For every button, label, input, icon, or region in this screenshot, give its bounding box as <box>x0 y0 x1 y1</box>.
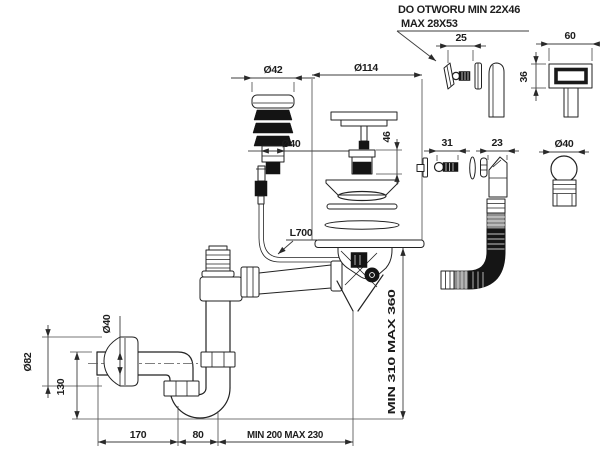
dim-36: 36 <box>518 52 546 101</box>
overflow-washer <box>470 157 476 179</box>
dim-o40-overflow-label: Ø40 <box>555 138 574 150</box>
overflow-rosette-pin <box>417 158 458 177</box>
plug-seal-ring-1 <box>254 110 292 120</box>
control-button <box>549 64 592 117</box>
stopper-plug <box>252 95 294 174</box>
adapter-ribbed <box>206 250 230 272</box>
button-face <box>556 70 586 83</box>
overflow-body <box>551 156 577 206</box>
dim-min200-label: MIN 200 MAX 230 <box>247 429 323 441</box>
dim-46-label: 46 <box>381 131 393 143</box>
strainer-cover <box>331 112 397 120</box>
mounting-screw-head <box>452 72 459 79</box>
cable-clevis <box>351 253 367 268</box>
lever-knob <box>365 268 380 283</box>
dim-60: 60 <box>536 30 600 61</box>
trap-nut-left <box>164 381 199 396</box>
dim-o42: Ø42 <box>231 64 315 92</box>
plug-seal-ring-2 <box>253 123 293 133</box>
strainer-basket-lip <box>349 150 375 157</box>
cable-block <box>255 181 267 196</box>
dim-o82-label: Ø82 <box>22 352 34 371</box>
plug-cap <box>252 95 294 108</box>
dim-25-label: 25 <box>455 32 467 44</box>
upper-pipe <box>259 265 331 294</box>
note-leader-line <box>397 31 436 61</box>
dim-min310: MIN 310 MAX 360 <box>386 248 403 419</box>
mounting-parts <box>444 63 504 117</box>
strainer-funnel <box>326 180 398 195</box>
hole-note-line2: MAX 28X53 <box>401 18 458 30</box>
gasket-bevel <box>325 221 399 229</box>
cable-pin <box>258 196 264 204</box>
rosette-pin-bar <box>417 165 424 172</box>
overflow-screw-head <box>435 163 444 172</box>
dim-60-label: 60 <box>564 30 576 42</box>
hose-top-cuff <box>487 199 505 213</box>
hose-end-cuff <box>441 271 454 289</box>
rosette-cap <box>104 337 138 386</box>
plug-nut <box>266 162 280 174</box>
riser-nut <box>201 352 235 367</box>
dim-o40-plug-label: Ø40 <box>282 138 301 150</box>
overflow-screw-thread <box>443 163 458 172</box>
dim-23-label: 23 <box>491 137 503 149</box>
dim-23: 23 <box>476 137 519 160</box>
tee-nut <box>241 267 259 297</box>
dim-25: 25 <box>436 32 486 63</box>
tee-body <box>200 277 242 301</box>
strainer-stem <box>361 126 367 141</box>
dim-o42-label: Ø42 <box>264 64 283 76</box>
dim-l700-label: L700 <box>290 227 313 239</box>
corrugated-hose <box>441 199 505 289</box>
strainer-cover-rim <box>341 120 387 126</box>
dim-o40-outlet-label: Ø40 <box>101 314 113 333</box>
siphon-pipes <box>88 246 259 418</box>
button-stem <box>564 88 578 117</box>
hose-corrugated-bend <box>468 229 505 289</box>
cable-connector <box>258 166 265 181</box>
hole-note-line1: DO OTWORU MIN 22X46 <box>398 4 520 16</box>
overflow-pin <box>481 158 488 177</box>
dim-l700: L700 <box>278 227 317 254</box>
dim-31-label: 31 <box>441 137 453 149</box>
dim-80-label: 80 <box>192 429 204 441</box>
wall-rosette <box>104 337 138 386</box>
mounting-cover <box>489 63 504 117</box>
technical-drawing: DO OTWORU MIN 22X46 MAX 28X53 25 60 <box>0 0 600 450</box>
overflow-ball <box>551 156 577 182</box>
basket-strainer <box>325 112 399 229</box>
adapter-flange <box>202 271 234 277</box>
dim-o40-overflow: Ø40 <box>539 138 589 152</box>
overflow-elbow-parts <box>470 157 507 197</box>
dim-170-label: 170 <box>130 429 147 441</box>
dim-36-label: 36 <box>518 71 530 83</box>
gasket-flat <box>327 204 397 209</box>
dim-130: 130 <box>55 352 92 419</box>
sink-siphon-drawing: DO OTWORU MIN 22X46 MAX 28X53 25 60 <box>0 0 600 450</box>
drain-cone-left <box>337 281 353 311</box>
dim-o114-label: Ø114 <box>354 62 378 74</box>
drain-flange <box>315 240 424 248</box>
overflow-socket <box>553 180 576 206</box>
dim-min310-label: MIN 310 MAX 360 <box>386 289 398 415</box>
strainer-basket-dark <box>353 162 371 174</box>
dim-31: 31 <box>424 137 470 161</box>
dim-130-label: 130 <box>55 378 67 395</box>
dim-46: 46 <box>376 131 402 185</box>
strainer-stem-tip <box>359 141 369 149</box>
drain-assembly <box>259 240 424 311</box>
